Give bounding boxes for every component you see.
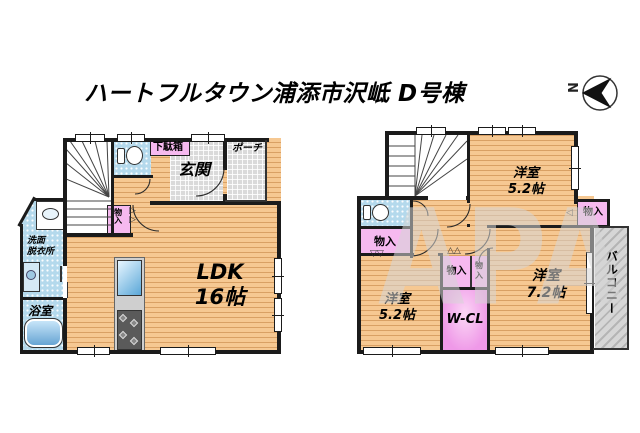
page-title: ハートフルタウン浦添市沢岻 D号棟 xyxy=(84,74,465,108)
room-label-closet-mid: 物入 xyxy=(443,266,470,278)
room-label-ldk: LDK 16帖 xyxy=(178,260,262,310)
closet-small-line2: 入 xyxy=(475,271,483,280)
bedroom-right-name: 洋室 xyxy=(532,268,560,284)
room-label-bathroom: 浴室 xyxy=(28,304,52,318)
bedroom-left-size: 5.2帖 xyxy=(379,308,415,323)
bedroom-right-size: 7.2帖 xyxy=(527,285,566,301)
washroom-line2: 脱衣所 xyxy=(27,247,54,257)
washroom-line1: 洗面 xyxy=(27,236,45,246)
bedroom-left-name: 洋室 xyxy=(384,292,410,307)
room-label-closet-right: 物入 xyxy=(579,207,607,219)
closet-small-line1: 物 xyxy=(475,261,483,270)
room-label-shoe-cabinet: 下駄箱 xyxy=(153,142,183,154)
compass-n-label: N xyxy=(567,82,582,93)
floor-plan-image: ハートフルタウン浦添市沢岻 D号棟 N N xyxy=(0,0,640,433)
room-label-balcony: バルコニー xyxy=(604,250,618,315)
bedroom-top-name: 洋室 xyxy=(513,166,539,181)
room-label-bedroom-right: 洋室 7.2帖 xyxy=(514,268,578,302)
room-label-closet-small: 物 入 xyxy=(475,261,483,280)
room-label-porch: ポーチ xyxy=(232,143,262,155)
room-label-washroom: 洗面 脱衣所 xyxy=(27,236,54,258)
room-label-closet-1f: 物入 xyxy=(113,208,123,224)
bedroom-top-size: 5.2帖 xyxy=(508,182,544,197)
ldk-size: 16帖 xyxy=(195,285,245,309)
compass-icon: N xyxy=(544,66,634,118)
room-label-bedroom-left: 洋室 5.2帖 xyxy=(366,292,428,323)
room-label-closet-left: 物入 xyxy=(360,235,410,248)
room-label-bedroom-top: 洋室 5.2帖 xyxy=(496,166,556,197)
room-label-wcl: W-CL xyxy=(443,312,487,328)
ldk-name: LDK xyxy=(196,260,243,284)
door-arcs xyxy=(0,0,640,433)
room-label-entrance: 玄関 xyxy=(178,160,210,179)
